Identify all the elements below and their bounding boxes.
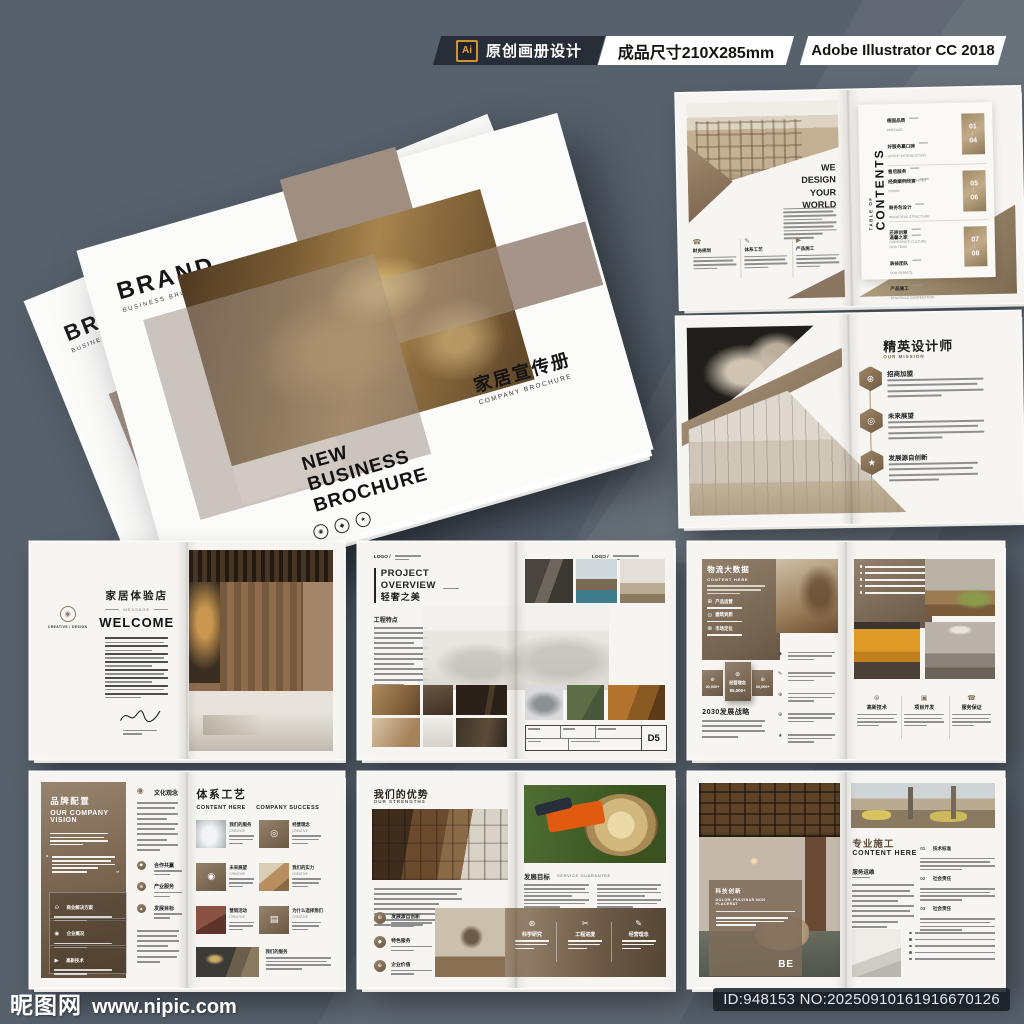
stat-value-1: 30,000+ — [706, 685, 720, 689]
site-name: 昵图网 — [10, 986, 82, 1020]
toc-card: TABLE OF CONTENTS 德国品质 PREFACE 好服务赢口碑 GR… — [858, 102, 996, 280]
construction-title: 专业施工 — [852, 836, 894, 850]
strength-item-2-lines — [391, 946, 432, 953]
welcome-cn-title: 家居体验店 — [96, 588, 178, 603]
cover-right-band — [497, 221, 604, 310]
red-room-photo — [196, 906, 226, 934]
size-banner: 成品尺寸210X285mm — [602, 36, 790, 65]
vision-intro-lines — [50, 833, 108, 848]
ops-section-label: 服务运维 — [852, 868, 874, 876]
value-circle-icon: ⊕ — [374, 960, 386, 972]
right-photo-plantwall — [567, 685, 605, 720]
grid-text-1: 我们的服务CREATIVE — [229, 822, 254, 847]
software-label: Adobe Illustrator CC 2018 — [811, 42, 994, 59]
original-design-label: 原创画册设计 — [486, 40, 582, 61]
industry-icon: ⊕ — [137, 882, 146, 891]
stat-card-1: ⊚ 30,000+ — [702, 670, 723, 696]
creative-badge: ◉ CREATIVE / DESIGN — [47, 603, 88, 629]
dining-photo — [925, 559, 995, 615]
bulb-icon: ◉ — [54, 931, 59, 937]
slogan-lines — [788, 713, 835, 724]
toc-item-en: INDUSTRIAL STRUCTURE — [889, 213, 988, 219]
slogan-glyph-1: ◆ — [778, 651, 782, 657]
storefront-photo — [196, 947, 259, 977]
spread-bigdata: 物流大数据 CONTENT HERE ⊕ 产品运营 ⊙ 建筑资质 ⊗ 市场定位 … — [688, 542, 1004, 759]
living-room-photo — [925, 622, 995, 678]
kitchen-photo — [372, 809, 508, 880]
chat-icon: ☎ — [693, 237, 736, 246]
gear-icon: ⊛ — [857, 694, 897, 702]
grid-icon-card-1: ◎ — [259, 820, 289, 848]
tech-card-sub2: PLACERAT — [716, 902, 795, 906]
vision-subtitle-2: VISION — [50, 817, 108, 824]
headline-your: YOUR — [774, 186, 836, 199]
mission-subtitle: OUR MISSION — [883, 354, 924, 360]
strategy-lines — [702, 720, 765, 741]
grid-photo-wardrobe — [456, 685, 507, 714]
data-feature-3: ☎ 服务保证 — [952, 694, 992, 729]
right-photo-kitchen — [525, 559, 572, 602]
center-brown-triangle — [786, 269, 845, 298]
goal-label: 发展目标 — [154, 905, 174, 912]
target-hex-icon: ◎ — [859, 408, 882, 433]
strength-item-3-lines — [391, 970, 432, 977]
vision-bottom-lines — [137, 930, 179, 966]
grid-photo-living — [372, 685, 419, 714]
goal-lines-left — [524, 884, 589, 910]
cover-circle-icon-3: ★ — [354, 510, 373, 529]
size-label: 成品尺寸210X285mm — [618, 39, 775, 63]
right-photo-warm-room — [608, 685, 665, 720]
bigdata-panel: 物流大数据 CONTENT HERE ⊕ 产品运营 ⊙ 建筑资质 ⊗ 市场定位 — [702, 559, 780, 660]
bigdata-item: 市场定位 — [715, 626, 733, 632]
mission-item-3: 发展源自创新 — [888, 451, 927, 462]
strength-item-1-lines — [391, 922, 432, 929]
feature-label: 财务规划 — [693, 248, 736, 255]
toc-item-cn: 德国品质 — [887, 118, 905, 123]
toc-group-2: 经典案例欣赏 VISION 商务包设计 INDUSTRIAL STRUCTURE… — [888, 163, 988, 219]
toc-item-cn: 经典案例欣赏 — [888, 179, 916, 185]
industry-lines — [154, 892, 182, 899]
slogan-lines — [788, 652, 835, 663]
band-item-1: ⊛ 科学研究 — [513, 919, 552, 951]
vision-title: 品牌配置 — [50, 795, 108, 807]
slogan-glyph-3: ⊕ — [778, 692, 782, 698]
adobe-illustrator-icon: Ai — [456, 40, 478, 62]
welcome-heading: WELCOME — [96, 615, 178, 630]
lobby-photo — [851, 783, 995, 828]
grid-photo-bedroom — [372, 718, 419, 747]
stat-icon-3: ⊕ — [761, 677, 765, 683]
spread-vision: 品牌配置 OUR COMPANY VISION “ ” ⊙ 商业解决方案 ◉ 企… — [30, 772, 344, 988]
pin-icon: ⊙ — [54, 905, 59, 911]
project-subheading: 工程特点 — [374, 615, 398, 624]
spread-project: LOGO / LOGO / PROJECT OVERVIEW 轻奢之美 工程特点 — [358, 542, 674, 759]
headline-design: DESIGN — [774, 174, 836, 187]
bigdata-subtitle: CONTENT HERE — [707, 577, 775, 582]
right-photo-villa — [576, 559, 617, 602]
bigdata-item: 建筑资质 — [715, 612, 733, 618]
head-icon: ◉ — [60, 606, 76, 622]
paper-plane-icon: ▶ — [796, 235, 839, 244]
logo-header-left: LOGO / — [374, 555, 421, 562]
industry-label: 产业服务 — [154, 883, 174, 890]
toc-group-3: 温馨之家 OUR TEAM 装修团队 OUR SERVICE 产品施工 STRA… — [889, 219, 989, 275]
ops-icon: ⊕ — [707, 598, 712, 605]
tech-card: 科技创新 DOLOR, PULVINAR NON PLACERAT BE — [709, 880, 802, 976]
stat-value-3: 30,000+ — [756, 685, 770, 689]
vision-sidebar: 品牌配置 OUR COMPANY VISION “ ” ⊙ 商业解决方案 ◉ 企… — [41, 782, 126, 979]
tools-icon: ✂ — [566, 919, 605, 928]
original-design-tag: Ai 原创画册设计 — [437, 36, 601, 65]
goal-icon: ▲ — [137, 904, 146, 913]
stat-card-2: ⊛ 经营理念 85,000+ — [725, 662, 751, 701]
toc-item-cn: 好服务赢口碑 — [887, 143, 915, 149]
craft-left-label: CONTENT HERE — [196, 805, 245, 811]
coop-lines — [154, 870, 182, 877]
goal-subtitle: SERVICE GUARANTEE — [557, 873, 611, 878]
vision-bottom-text: 我们的服务 — [266, 949, 332, 972]
service-circle-icon: ◆ — [374, 936, 386, 948]
bullet-list — [909, 932, 994, 965]
feature-column-2: ✎ 体系工艺 — [744, 236, 788, 271]
feature-column-1: ☎ 财务规划 — [693, 237, 737, 272]
spread-welcome: ◉ CREATIVE / DESIGN 家居体验店 MESSAGE WELCOM… — [30, 542, 344, 759]
cover-circle-icon-1: ◉ — [312, 522, 331, 541]
megaphone-icon: ▶ — [54, 958, 58, 964]
bullet-panel — [854, 559, 932, 627]
cover-circle-icon-2: ◆ — [333, 516, 352, 535]
goal-title: 发展目标 — [524, 871, 550, 881]
slogan-glyph-2: ✎ — [778, 671, 782, 677]
feature-column-3: ▶ 产品施工 — [796, 235, 840, 270]
message-tag: MESSAGE — [123, 607, 150, 612]
project-note — [443, 588, 471, 592]
bigdata-title: 物流大数据 — [707, 564, 775, 575]
welcome-paragraph — [105, 637, 168, 700]
project-title-block: PROJECT OVERVIEW 轻奢之美 — [374, 568, 436, 603]
culture-label: 文化观念 — [154, 788, 178, 797]
goal-lines — [154, 913, 182, 920]
slogan-lines — [788, 672, 835, 683]
mission-item-1-lines — [887, 378, 984, 400]
band-lobby-photo — [435, 908, 504, 977]
coop-icon: ◆ — [137, 861, 146, 870]
slogan-lines — [788, 734, 835, 745]
toc-item-cn: 装修团队 — [890, 260, 908, 265]
strengths-subtitle: OUR STRENGTHS — [374, 799, 426, 804]
mission-item-1: 招商加盟 — [887, 367, 913, 377]
slogan-glyph-4: ⊛ — [778, 712, 782, 718]
sidebar-card-2: ◉ 企业概况 — [49, 918, 127, 948]
signature — [118, 705, 162, 727]
grid-text-3: 未来展望CREATIVE — [229, 865, 254, 890]
stat-card-3: ⊕ 30,000+ — [752, 670, 773, 696]
mission-item-3-lines — [889, 462, 979, 484]
toc-page-range: 07⋮08 — [964, 226, 988, 267]
data-feature-1: ⊛ 高新技术 — [857, 694, 897, 729]
toc-item-en: STRATEGIC COOPERATION — [891, 294, 990, 300]
mission-item-2-lines — [888, 420, 985, 442]
shelf-room-photo — [776, 559, 838, 633]
craft-right-label: COMPANY SUCCESS — [256, 805, 319, 811]
toc-group-1: 德国品质 PREFACE 好服务赢口碑 GROUP INTRODUCTION 售… — [887, 107, 987, 162]
std-group-3: 03 社会责任 — [920, 897, 994, 933]
toc-page-range: 01⋮04 — [961, 113, 985, 154]
stat-label-2: 经营理念 — [729, 680, 746, 686]
page-marker: D5 — [641, 726, 666, 750]
interior-photo-small — [259, 863, 289, 891]
band-item-2: ✂ 工程进度 — [566, 919, 605, 951]
grid-text-6: 为什么选择我们CREATIVE — [292, 908, 333, 933]
headset-icon: ☎ — [952, 694, 992, 702]
toc-item-cn: 温馨之家 — [889, 235, 907, 240]
right-photo-lounge — [620, 559, 664, 602]
sidebar-card-1: ⊙ 商业解决方案 — [49, 892, 127, 922]
signature-caption — [123, 730, 158, 737]
chainsaw-photo — [524, 785, 666, 863]
right-photo-art — [525, 685, 563, 720]
sidebar-card-3: ▶ 高新技术 — [49, 945, 127, 975]
slogan-lines — [788, 693, 835, 704]
coop-label: 合作共赢 — [154, 862, 174, 869]
feature-label: 体系工艺 — [744, 247, 787, 254]
grid-text-5: 营销活动CREATIVE — [229, 908, 254, 933]
spec-table: D5 — [525, 725, 666, 751]
grid-photo-white-room — [423, 718, 453, 747]
mission-title: 精英设计师 — [883, 335, 953, 355]
data-feature-2: ▣ 项目开发 — [904, 694, 944, 729]
orange-kitchen-photo — [854, 622, 920, 678]
creative-badge-label: CREATIVE / DESIGN — [47, 625, 88, 629]
grid-icon-card-2: ◉ — [196, 863, 226, 891]
feature-label: 产品施工 — [796, 245, 839, 252]
fabric-photo — [196, 820, 226, 848]
hallway-photo — [189, 550, 333, 752]
site-url: www.nipic.com — [92, 996, 237, 1019]
cover-mockup: BRAND BUSINESS BROCHURE BRAND BUSINESS B… — [0, 60, 680, 530]
toc-main-label: CONTENTS — [872, 148, 888, 230]
goal-lines-right — [597, 884, 662, 910]
strength-item-2: 特色服务 — [391, 937, 410, 944]
build-icon: ⊙ — [707, 612, 712, 619]
craft-title: 体系工艺 — [196, 786, 246, 802]
id-badge: ID:948153 NO:20250910161916670126 — [713, 988, 1010, 1011]
monitor-icon: ▣ — [904, 694, 944, 702]
stat-icon-1: ⊚ — [710, 677, 714, 683]
project-text — [374, 627, 428, 689]
grid-text-2: 经营理念CREATIVE — [292, 822, 333, 847]
bottom-band: ⊛ 科学研究 ✂ 工程进度 ✎ 经营理念 — [435, 908, 666, 977]
contents-headline: WE DESIGN YOUR WORLD — [774, 162, 837, 212]
toc-vertical-label: TABLE OF CONTENTS — [867, 148, 888, 230]
mission-item-2: 未来展望 — [888, 409, 914, 419]
tech-card-mark: BE — [778, 959, 794, 970]
grid-icon-card-3: ▤ — [259, 906, 289, 934]
toc-item-cn: 商务包设计 — [889, 204, 912, 209]
stat-value-2: 85,000+ — [730, 688, 746, 693]
spread-mission: 精英设计师 OUR MISSION ⊛ 招商加盟 ◎ 未来展望 ★ 发展源自创新 — [676, 311, 1024, 527]
band-item-3: ✎ 经营理念 — [619, 919, 658, 951]
ops-lines — [852, 884, 914, 931]
spread-contents: WE DESIGN YOUR WORLD ☎ 财务规划 ✎ 体系工艺 ▶ 产品施… — [676, 86, 1024, 309]
software-banner: Adobe Illustrator CC 2018 — [804, 36, 1002, 65]
toc-item-cn: 产品施工 — [890, 286, 908, 291]
vision-subtitle-1: OUR COMPANY — [50, 810, 108, 817]
spread-strengths: 我们的优势 OUR STRENGTHS ⊛ 发展源自创新 ◆ 特色服务 ⊕ 企业… — [358, 772, 674, 988]
pencil-icon: ✎ — [744, 236, 787, 245]
slogan-glyph-5: ★ — [778, 733, 782, 739]
grid-photo-sofa — [423, 685, 453, 714]
watermark: 昵图网 www.nipic.com — [10, 986, 237, 1020]
culture-icon: ◉ — [137, 786, 144, 795]
bigdata-item: 产品运营 — [715, 599, 733, 605]
recycle-icon: ⊛ — [513, 919, 552, 928]
spread-construction: 科技创新 DOLOR, PULVINAR NON PLACERAT BE 专业施… — [688, 772, 1004, 988]
construction-subtitle: CONTENT HERE — [852, 850, 917, 857]
front-cover-book: BRAND BUSINESS BROCHURE NEW BUSINESS BRO… — [76, 113, 653, 587]
toc-item-en: OUR SERVICE — [890, 269, 989, 275]
vision-quote: “ ” — [48, 856, 119, 874]
grid-text-4: 我们的实力CREATIVE — [292, 865, 333, 890]
ops-section-sub — [852, 877, 884, 881]
white-kitchen-photo — [852, 929, 901, 978]
stat-icon-2: ⊛ — [735, 671, 740, 678]
strength-item-1: 发展源自创新 — [391, 913, 420, 920]
gear-hex-icon: ⊛ — [859, 366, 882, 391]
strategy-heading: 2030发展战略 — [702, 707, 750, 717]
grid-photo-dark-room — [456, 718, 507, 747]
center-interior-photo — [423, 605, 609, 690]
tech-card-title: 科技创新 — [716, 887, 795, 895]
market-icon: ⊗ — [707, 625, 712, 632]
toc-page-range: 05⋮06 — [962, 170, 986, 211]
culture-lines — [137, 802, 178, 854]
ruler-icon: ✎ — [619, 919, 658, 928]
strength-item-3: 企业价值 — [391, 961, 410, 968]
